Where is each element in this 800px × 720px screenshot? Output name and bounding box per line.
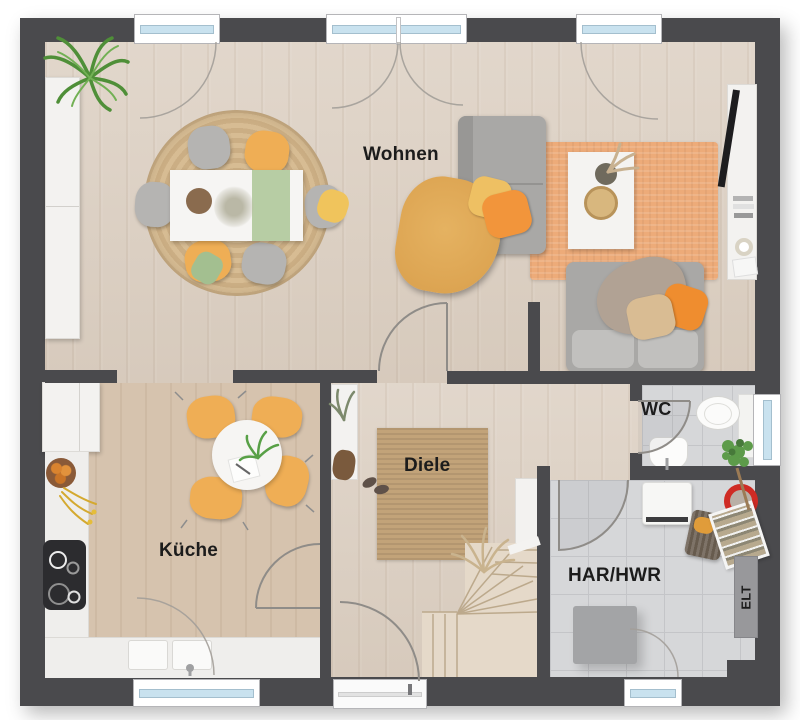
window-mullion [396,17,401,45]
room-label-elt: ELT [739,576,754,620]
washer-control-panel [646,517,688,522]
sink-basin [128,640,168,670]
wall-kitchen-hall-lower [320,610,331,677]
window-utility [624,679,682,707]
fridge-divider [79,383,80,451]
centerpiece-bowl [186,188,212,214]
fruit-bowl [46,458,76,488]
window-glass [140,25,214,34]
wall-stairs-utility [537,466,550,677]
book [734,213,753,218]
wc-sink [649,437,688,469]
tall-cabinet [45,77,80,339]
window-glass [763,400,772,460]
hallway-rug [377,428,488,560]
sofa-cushion [572,330,634,368]
window-kitchen [133,679,260,707]
decor-roll [735,238,753,256]
room-label-wohnen: Wohnen [363,144,439,166]
room-label-kueche: Küche [159,540,218,562]
utility-appliance [573,606,637,664]
gold-tray [584,186,618,220]
wall-center [233,370,377,383]
floor-plan: Wohnen Küche Diele WC HAR/HWR ELT [0,0,800,720]
wall-living-south [447,371,755,384]
washing-machine [642,482,692,525]
white-book [732,256,758,277]
wall-kitchen-living [45,370,117,383]
centerpiece-flowers [214,186,254,228]
window-glass [630,689,676,698]
room-label-har-hwr: HAR/HWR [568,565,661,587]
sink-basin [172,640,212,670]
book [733,204,754,209]
dining-table [170,170,303,241]
window-top-3 [576,14,662,44]
room-label-diele: Diele [404,455,450,477]
door-handle [408,684,412,695]
table-runner [252,170,290,241]
wall-wc-utility [630,466,755,480]
wall-kitchen-hall-upper [320,383,331,543]
window-glass [582,25,656,34]
wall-spur [528,302,540,372]
wall-corner-notch [727,660,755,677]
book [733,196,753,201]
room-label-wc: WC [641,399,671,420]
window-wc [753,394,781,466]
cabinet-divider [46,206,79,207]
window-glass [139,689,254,698]
entrance-door [333,679,427,709]
toilet [696,396,740,430]
stair-side-cabinet [515,478,538,558]
cooktop [43,540,86,610]
fridge-cabinet [42,382,100,452]
window-top-2 [326,14,467,44]
toilet-bowl-rim [704,403,732,425]
window-top-1 [134,14,220,44]
